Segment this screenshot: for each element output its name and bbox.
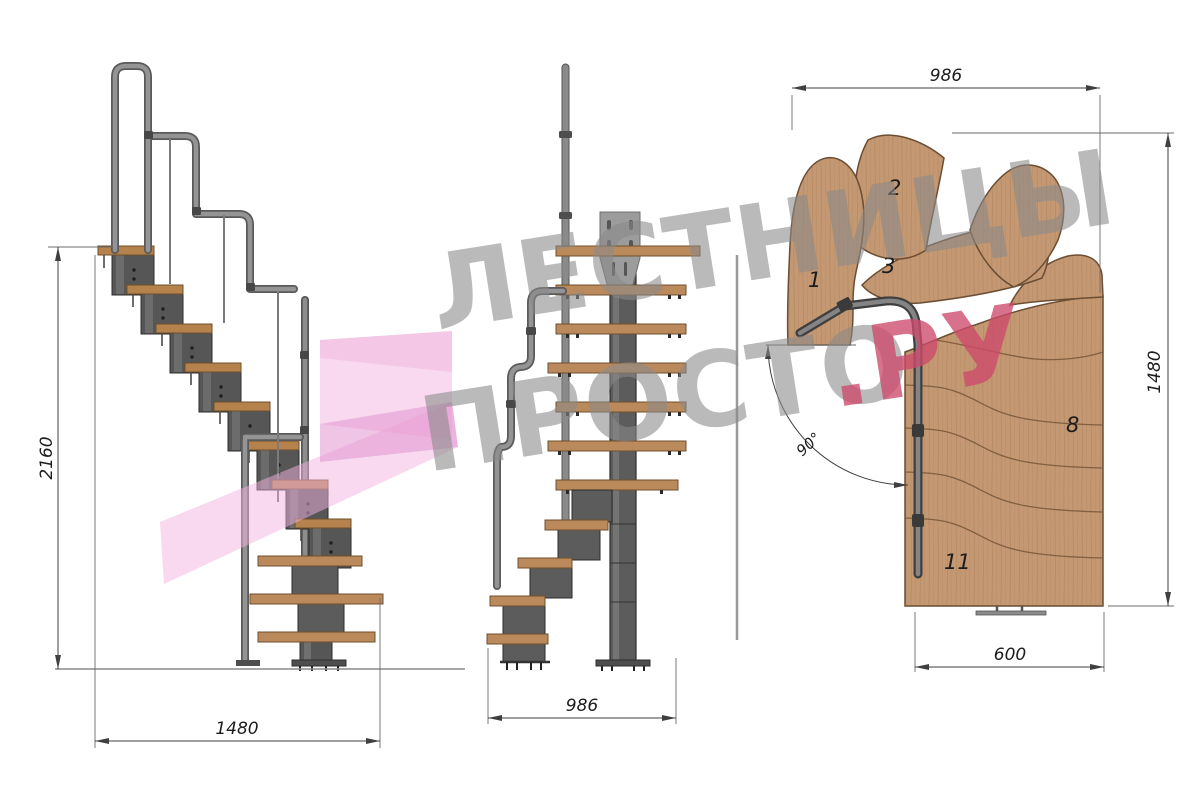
side-lower-flight: [250, 556, 383, 671]
dimension-plan-bottom: 600: [915, 612, 1104, 672]
rail-clamp: [192, 207, 201, 215]
rail-clamp: [144, 131, 153, 139]
rail-clamp: [246, 283, 255, 291]
dim-label-986-plan: 986: [930, 66, 963, 86]
dim-label-986-front: 986: [566, 696, 599, 716]
plan-wall-bracket: [976, 606, 1046, 615]
step-label-11: 11: [944, 550, 971, 574]
staircase-drawing-canvas: 2160 1480: [0, 0, 1200, 790]
drawing-page: 2160 1480: [0, 0, 1200, 790]
rail-clamp: [300, 351, 309, 359]
dim-label-1480-run: 1480: [215, 719, 258, 739]
rail-clamp: [300, 426, 309, 434]
dim-label-600: 600: [994, 645, 1026, 665]
rail-clamp: [912, 514, 924, 527]
newel-base-plate: [236, 660, 260, 666]
dim-label-2160: 2160: [37, 436, 57, 479]
column-base-plate: [596, 660, 650, 666]
rail-clamp: [912, 424, 924, 437]
step-label-8: 8: [1066, 413, 1079, 437]
dim-label-1480-plan: 1480: [1145, 350, 1165, 393]
dimension-side-height: 2160: [37, 247, 112, 669]
front-lower-flight: [487, 490, 612, 670]
